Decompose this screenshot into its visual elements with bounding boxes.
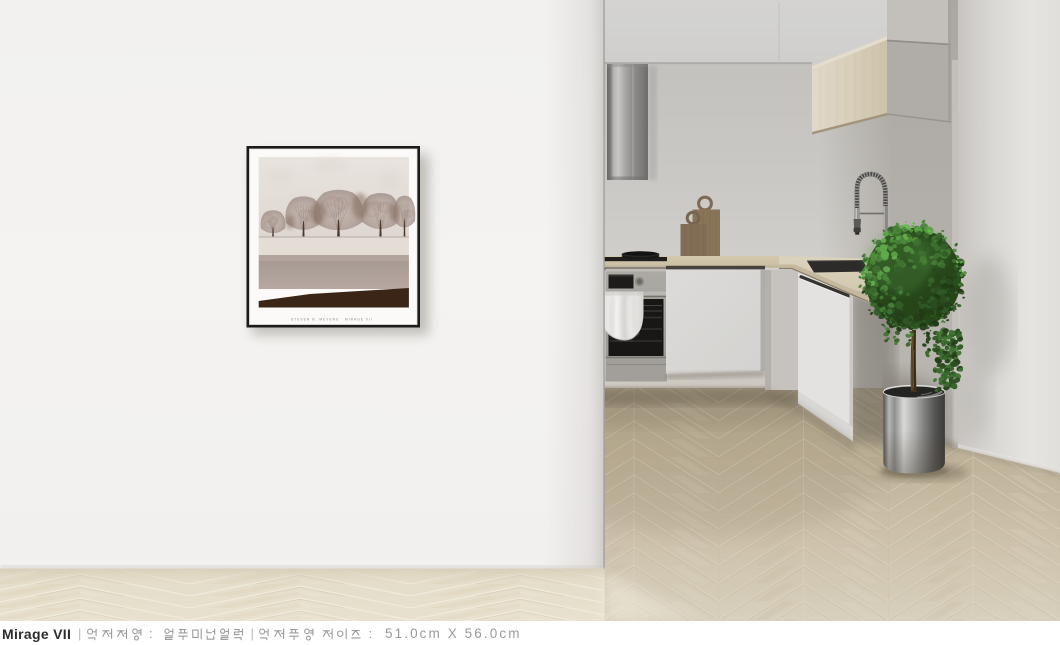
svg-text:STEVEN N. MEYERS MIRAGE VII: STEVEN N. MEYERS MIRAGE VII [291,318,373,322]
